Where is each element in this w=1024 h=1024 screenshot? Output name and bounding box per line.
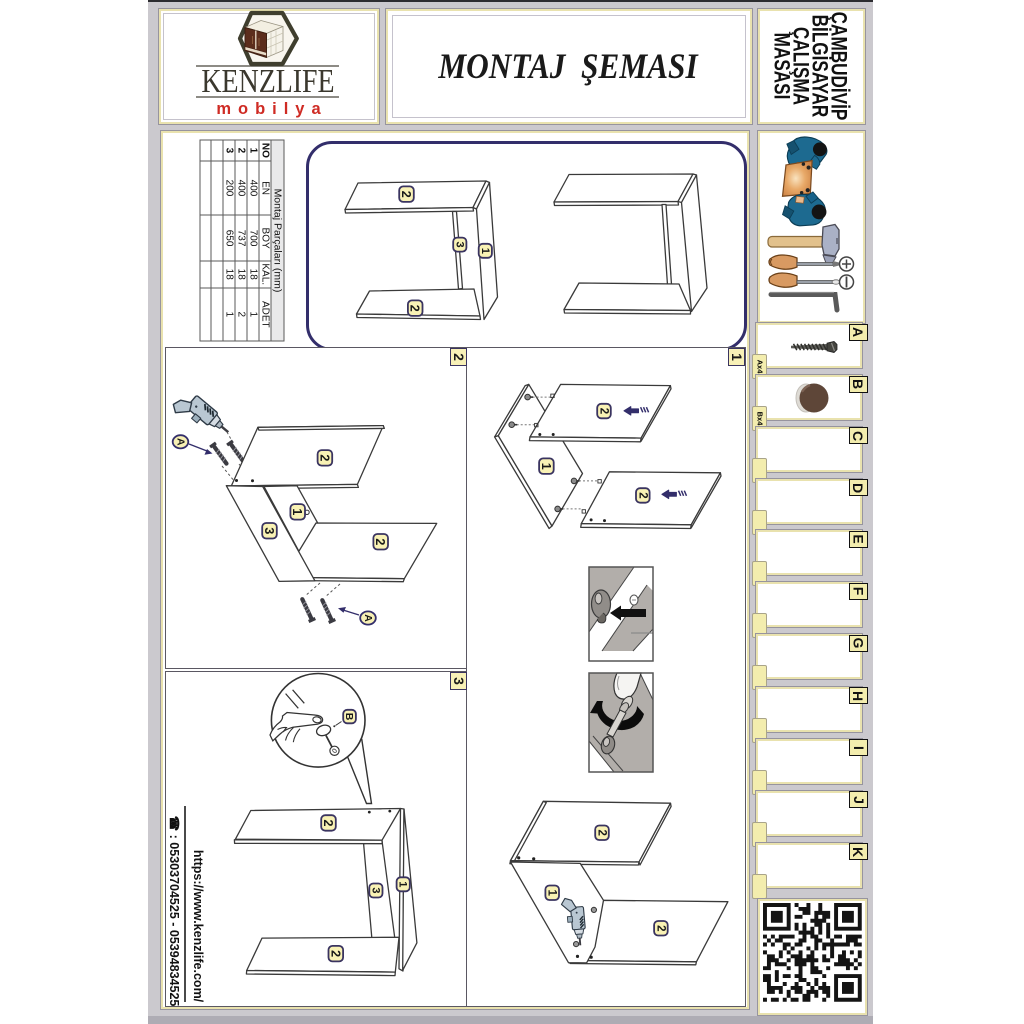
svg-text:2: 2 bbox=[317, 454, 331, 461]
svg-text:2: 2 bbox=[321, 820, 335, 827]
svg-text:1: 1 bbox=[546, 889, 558, 896]
svg-text:2: 2 bbox=[654, 925, 666, 931]
svg-text:2: 2 bbox=[636, 492, 648, 498]
svg-text:2: 2 bbox=[328, 950, 342, 957]
svg-text:A: A bbox=[175, 438, 187, 446]
svg-text:2: 2 bbox=[373, 538, 387, 545]
svg-text:2: 2 bbox=[598, 408, 610, 414]
svg-text:3: 3 bbox=[453, 242, 465, 248]
svg-text:3: 3 bbox=[369, 887, 381, 893]
svg-text:2: 2 bbox=[408, 305, 422, 312]
svg-text:2: 2 bbox=[399, 191, 413, 198]
svg-text:1: 1 bbox=[397, 881, 409, 887]
svg-text:3: 3 bbox=[262, 527, 276, 534]
svg-text:2: 2 bbox=[596, 829, 608, 835]
svg-text:B: B bbox=[343, 713, 355, 721]
svg-text:1: 1 bbox=[290, 508, 304, 515]
svg-text:1: 1 bbox=[539, 463, 553, 470]
svg-text:A: A bbox=[362, 614, 374, 622]
svg-text:1: 1 bbox=[479, 248, 491, 254]
